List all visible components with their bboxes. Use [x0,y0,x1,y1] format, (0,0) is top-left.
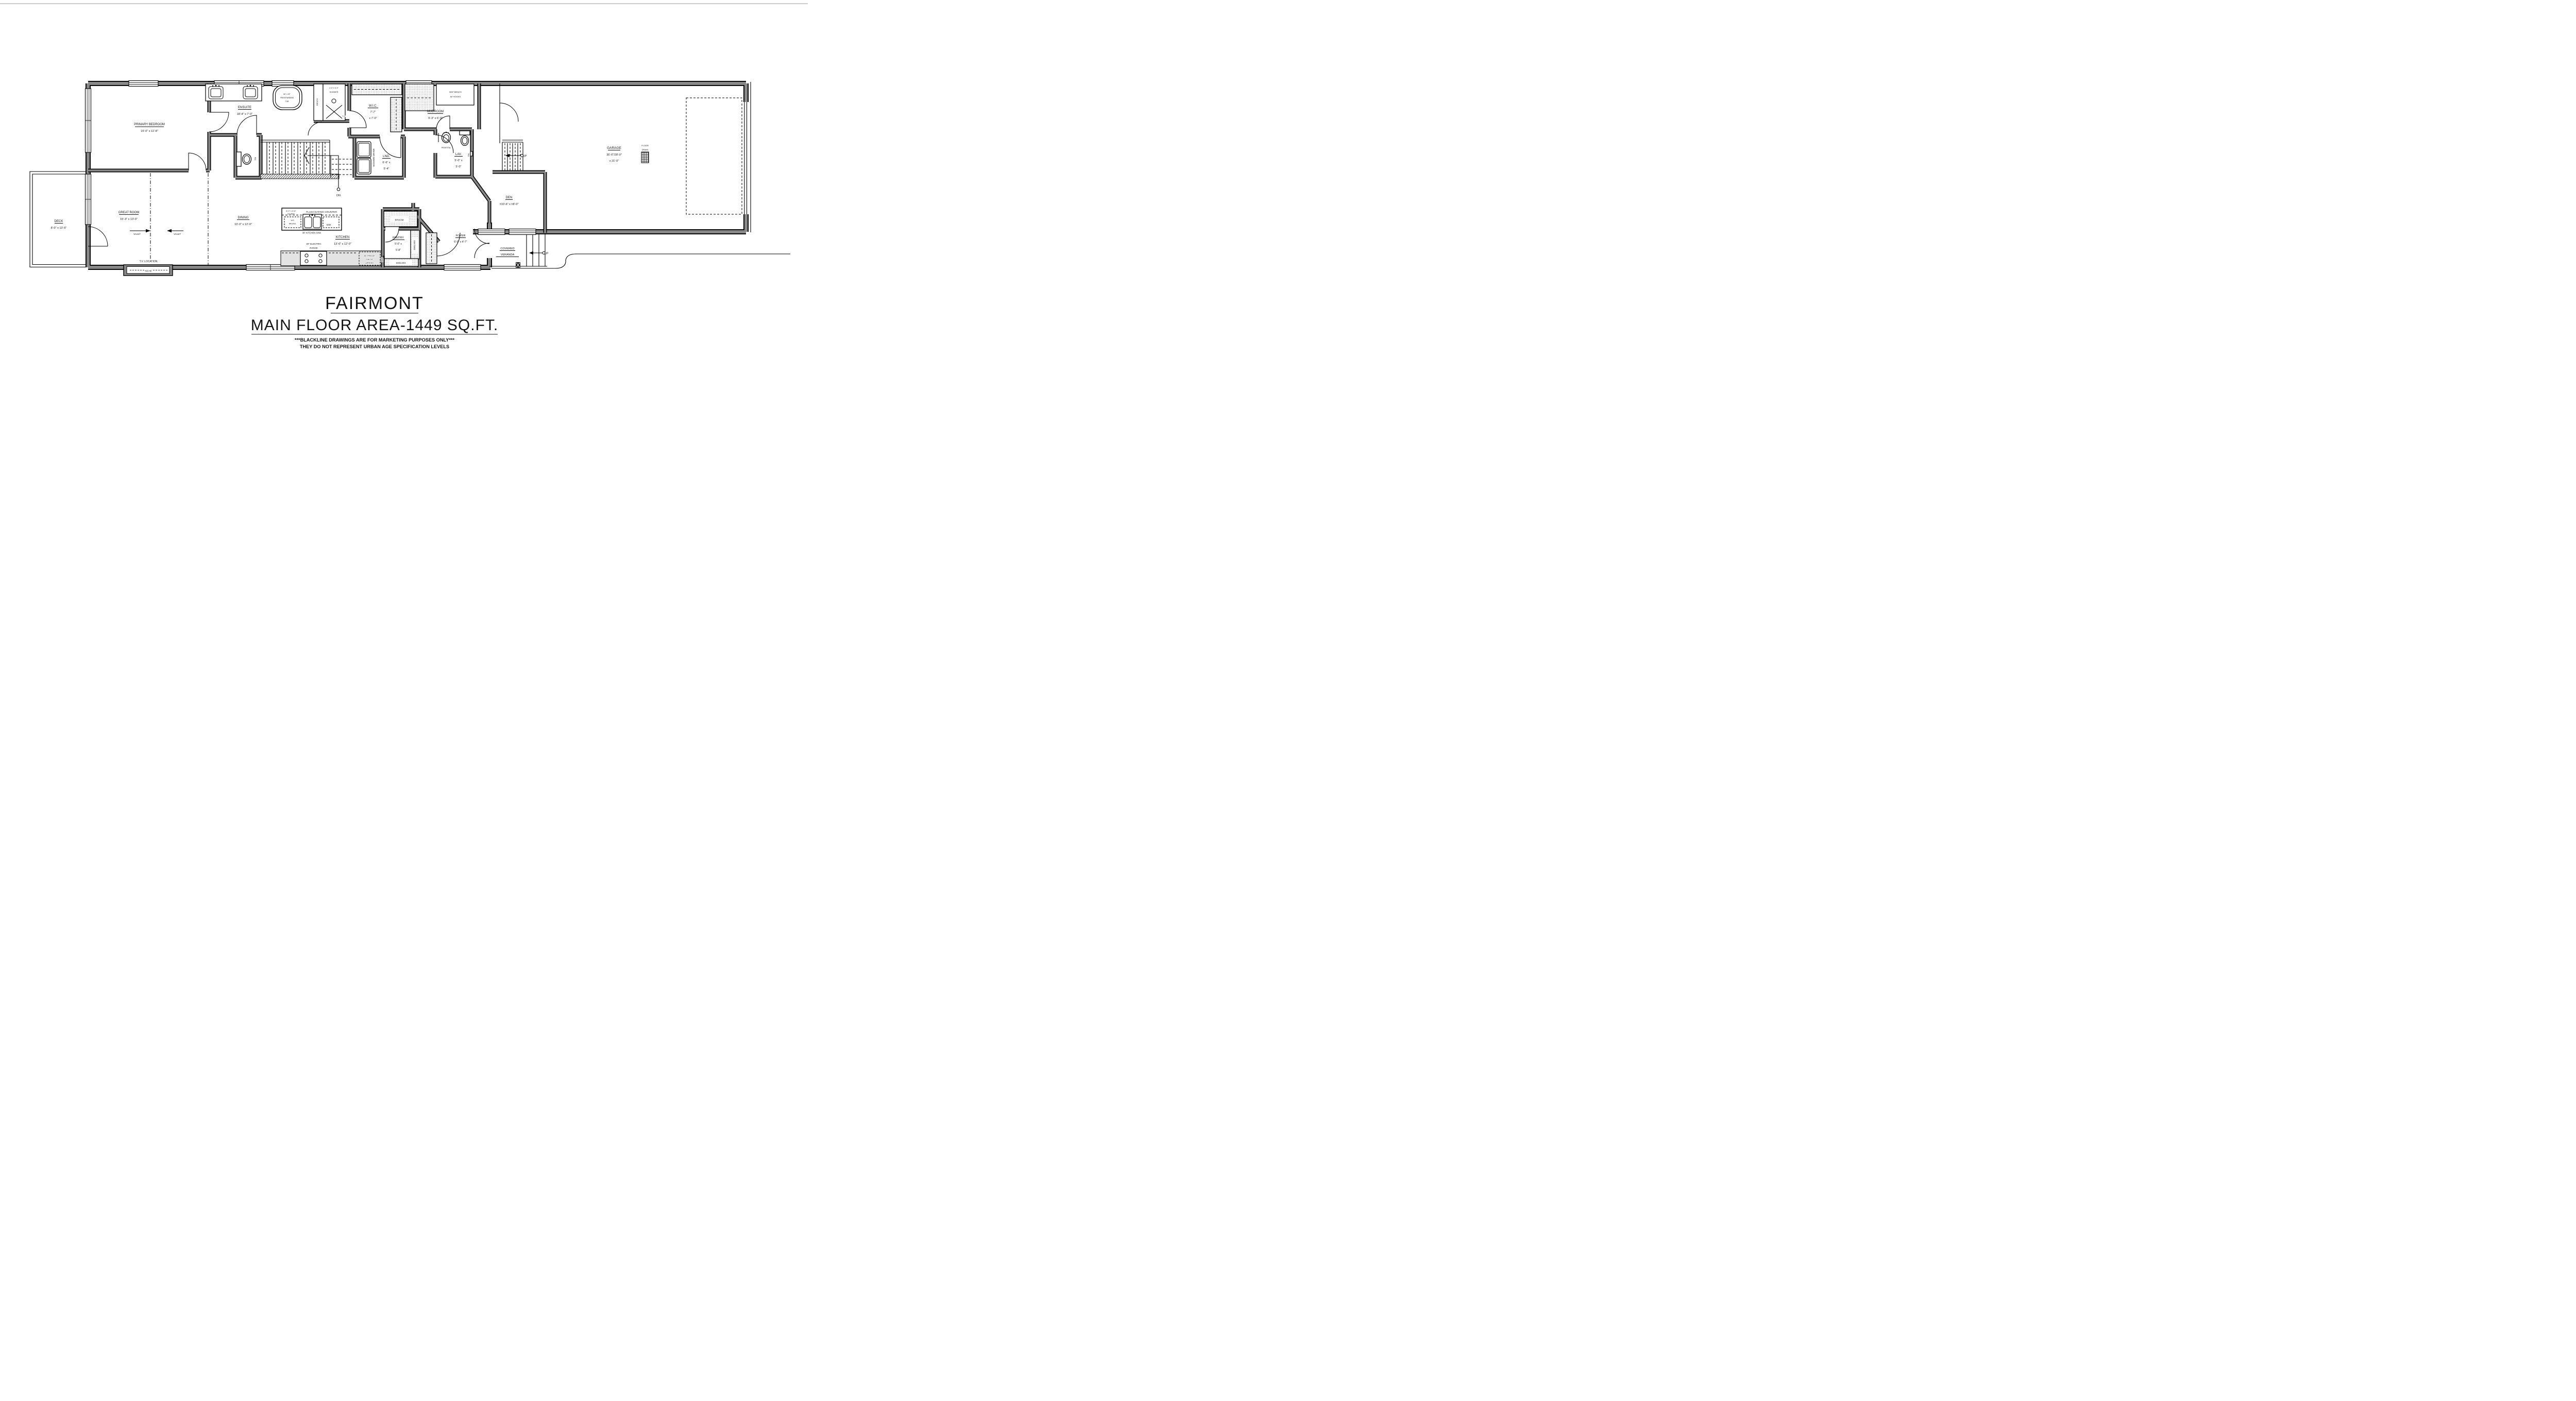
room-dims-ensuite: 18'-4" x 7'-0" [237,113,253,116]
mdf-bench-label-1: MDF BENCH [449,91,462,93]
room-name-lav: LAV. [455,153,462,156]
tub-label-1: 60" x 32" [283,93,291,95]
uc-micro-label-1: U/C [291,219,295,221]
shelves-label-bottom: SHELVES [396,262,405,264]
toilet-icon [460,131,470,146]
floor-drain-label-2: DRAIN [642,148,649,151]
room-dims-garage-2: x 21'-0" [609,160,619,163]
kitchen-sink-icon [303,214,321,229]
sheet-top-rule [0,3,808,4]
tph-label-wc: TPH [255,157,257,160]
flush-counter-label: FLUSH EATING COUNTER [306,211,337,214]
dw-label: DW [327,224,331,227]
mdf-bench-icon [436,84,474,105]
fridge-label-1: 36" FRIDGE [364,254,375,257]
mdf-bench-label-2: W/ HOOKS [450,95,461,98]
room-name-foyer: FOYER [456,234,466,237]
uc-micro-label-2: MICRO. [289,223,296,225]
tv-location-label: T.V. LOCATION [140,260,158,263]
room-name-mudroom: MUDROOM [427,110,444,113]
garage-entry-stairs [500,83,523,170]
room-name-pantry: PANTRY [393,236,404,240]
room-dims-dining: 10'-0" x 12'-0" [234,223,252,226]
foyer-coat-closet [426,233,437,264]
room-name-den: DEN [506,196,513,199]
room-dims-lav-1: 5'-0" x [454,159,462,162]
disclaimer-line-2: THEY DO NOT REPRESENT URBAN AGE SPECIFIC… [300,344,449,349]
bench-label: BENCH [316,98,318,106]
washer-dryer-icon [357,142,371,174]
fridge-label-2: C/W 24" [366,258,374,261]
tub-label-3: TUB [285,100,290,102]
room-name-veranda-2: VERANDA [501,253,515,257]
vault-label-right: VAULT [174,233,181,235]
shelves-label-side: SHELVES [413,240,416,250]
room-dims-pantry-1: 5'-0" x [395,243,402,246]
niche-label: NICHE [145,270,151,272]
vault-lines [150,173,208,266]
shower-bench [314,84,323,121]
room-dims-den: ±10'-6" x ±8'-0" [500,203,519,206]
floor-drain-label-1: FLOOR [641,144,649,147]
tc-label: T C [342,115,345,117]
room-name-wic: W.I.C. [369,105,378,108]
veranda-post-icon [516,262,520,268]
room-dims-kitchen: 13'-6" x 12'-0" [334,243,351,246]
room-dims-mudroom: 9'-3" x 6'-3" [428,117,443,120]
up-label-veranda: UP [545,252,549,255]
room-dims-foyer: 6'-0" x 4'-7" [454,241,467,244]
room-name-laundry: LND. [383,155,390,158]
up-label-garage-stairs: UP [523,155,528,158]
main-staircase [261,140,353,191]
pedestal-label: PEDESTAL [442,147,451,149]
tph-label-lav: TPH [468,153,470,157]
shower-label: SHOWER [329,91,338,93]
vault-arrows [130,229,183,232]
door-swings [88,103,518,258]
tub-label-2: FREESTANDING [280,97,294,99]
room-dims-primary-bedroom: 15'-0" x 11'-8" [141,130,158,133]
room-name-primary-bedroom: PRIMARY BEDROOM [134,123,165,126]
room-dims-laundry-1: 6'-6" x [382,161,390,164]
garage-door [686,82,751,232]
room-name-garage: GARAGE [607,146,621,150]
broom-label: BROOM [395,219,403,221]
tph-holder-icon [470,151,472,156]
mudroom-closet [405,84,434,111]
washer-dryer-label: WASHER/ DRYER [372,148,375,166]
ensuite-vanity [206,84,262,101]
room-dims-lav-2: 5'-0" [456,165,462,168]
island-label: ISLAND [287,213,295,215]
area-subtitle: MAIN FLOOR AREA-1449 SQ.FT. [251,317,498,334]
toilet-icon [236,152,251,166]
room-dims-laundry-2: 5'-4" [384,167,389,170]
room-name-ensuite: ENSUITE [238,106,251,109]
floor-drain-icon [641,152,649,163]
shower-size-label: 4'-0" X 3'-0" [329,87,338,89]
room-name-dining: DINING [238,216,249,219]
room-dims-wic-1: 7'-7" [370,111,376,114]
room-name-great-room: GREAT ROOM [118,211,139,214]
room-dims-great-room: 15'-3" x 13'-0" [120,218,138,221]
room-dims-wic-2: x 7'-0" [369,117,377,120]
range-icon [300,251,327,265]
shower-icon [314,84,345,121]
plan-name-title: FAIRMONT [325,294,424,313]
room-name-deck: DECK [55,220,63,223]
veranda-steps [489,234,547,268]
room-name-veranda-1: COVERED [500,247,514,250]
range-label-2: RANGE [310,247,318,249]
vault-label-left: VAULT [133,233,141,235]
floor-plan-drawing: PRIMARY BEDROOM 15'-0" x 11'-8" ENSUITE … [0,0,808,426]
range-label-1: 30" ELECTRIC [306,243,321,245]
water-label: water [381,257,383,262]
title-block: FAIRMONT MAIN FLOOR AREA-1449 SQ.FT. ***… [251,294,498,349]
room-name-kitchen: KITCHEN [336,236,349,239]
stair-landing [261,174,339,179]
room-dims-pantry-2: 5'-8" [396,249,401,252]
fridge-label-3: UPPERS [365,262,374,264]
dn-label: DN [336,194,341,197]
deck-railing [30,172,88,267]
room-dims-deck: 8'-0" x 13'-6" [51,227,67,230]
island-size-label: 8'-0" x 3'-0" [286,210,296,212]
floor-plan-sheet: PRIMARY BEDROOM 15'-0" x 11'-8" ENSUITE … [0,0,808,426]
kitchen-sink-label: 30" KITCHEN SINK [302,232,321,234]
disclaimer-line-1: ***BLACKLINE DRAWINGS ARE FOR MARKETING … [295,337,455,343]
room-dims-garage-1: 36'-6"/28'-0" [606,153,622,157]
